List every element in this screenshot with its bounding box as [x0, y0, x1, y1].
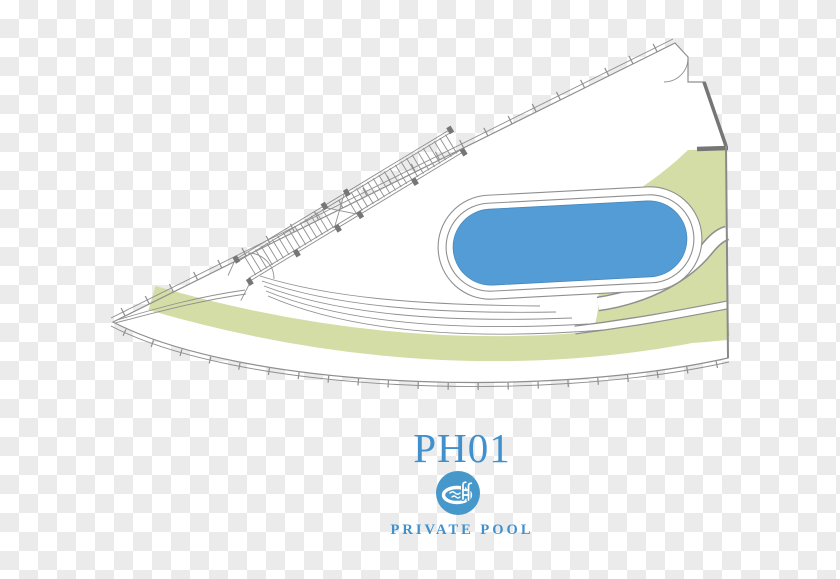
pool-water — [451, 199, 689, 287]
private-pool — [435, 184, 704, 302]
unit-id-label: PH01 — [413, 424, 510, 472]
transparent-floorplan-image: { "image": { "width": 840, "height": 579… — [0, 0, 840, 579]
planter-wall-bar — [697, 148, 728, 149]
feature-label: PRIVATE POOL — [390, 522, 533, 539]
pool-icon — [435, 470, 481, 516]
penthouse-floorplan — [0, 0, 840, 579]
